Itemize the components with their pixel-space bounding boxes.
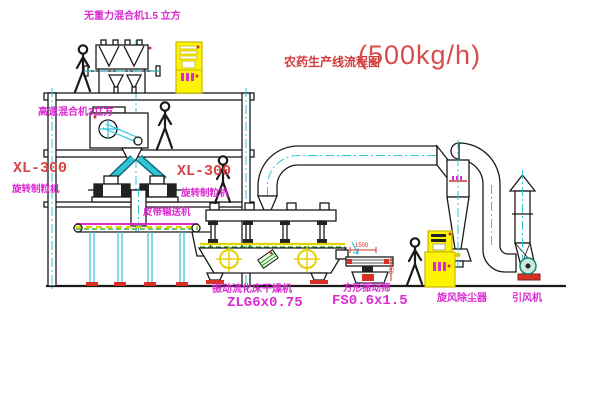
label-granulator-left-name: 旋转制粒机 bbox=[12, 185, 60, 195]
label-granulator-left-model: XL-300 bbox=[13, 161, 67, 176]
granulator-left bbox=[88, 176, 136, 202]
control-cabinet-ground bbox=[425, 231, 455, 287]
induced-draft-fan bbox=[518, 258, 540, 280]
label-fluidbed-dryer-model: ZLG6x0.75 bbox=[227, 296, 303, 310]
label-cyclone: 旋风除尘器 bbox=[437, 294, 487, 304]
worker-second-floor bbox=[157, 102, 172, 149]
label-induced-fan: 引风机 bbox=[512, 294, 542, 304]
dim-screen-length: 1500 bbox=[355, 243, 368, 249]
label-square-screen-model: FS0.6x1.5 bbox=[332, 294, 408, 308]
label-granulator-right-model: XL-300 bbox=[177, 164, 231, 179]
cad-drawing-canvas: 农药生产线流程图 (500kg/h) 无重力混合机1.5 立方 高速混合机3立方… bbox=[0, 0, 600, 403]
conveyor-legs bbox=[86, 232, 188, 286]
control-cabinet-top bbox=[176, 42, 202, 93]
exhaust-duct bbox=[258, 146, 448, 210]
gravity-free-mixer bbox=[82, 40, 162, 93]
belt-conveyor bbox=[74, 224, 214, 286]
label-granulator-right-name: 旋转制粒机 bbox=[181, 189, 229, 199]
label-belt-conveyor: 皮带输送机 bbox=[143, 208, 191, 218]
drawing-title-capacity: (500kg/h) bbox=[358, 42, 481, 69]
dryer-suspension-rods bbox=[208, 221, 327, 243]
fluid-bed-dryer bbox=[199, 203, 358, 284]
label-fluidbed-dryer: 振动流化床干燥机 bbox=[212, 285, 292, 295]
worker-ground-floor bbox=[407, 238, 422, 285]
label-gravity-mixer: 无重力混合机1.5 立方 bbox=[84, 12, 181, 22]
label-high-speed-mixer: 高速混合机3立方 bbox=[38, 108, 114, 118]
dim-screen-height: 750 bbox=[387, 264, 393, 274]
cyclone-separator bbox=[445, 140, 516, 272]
